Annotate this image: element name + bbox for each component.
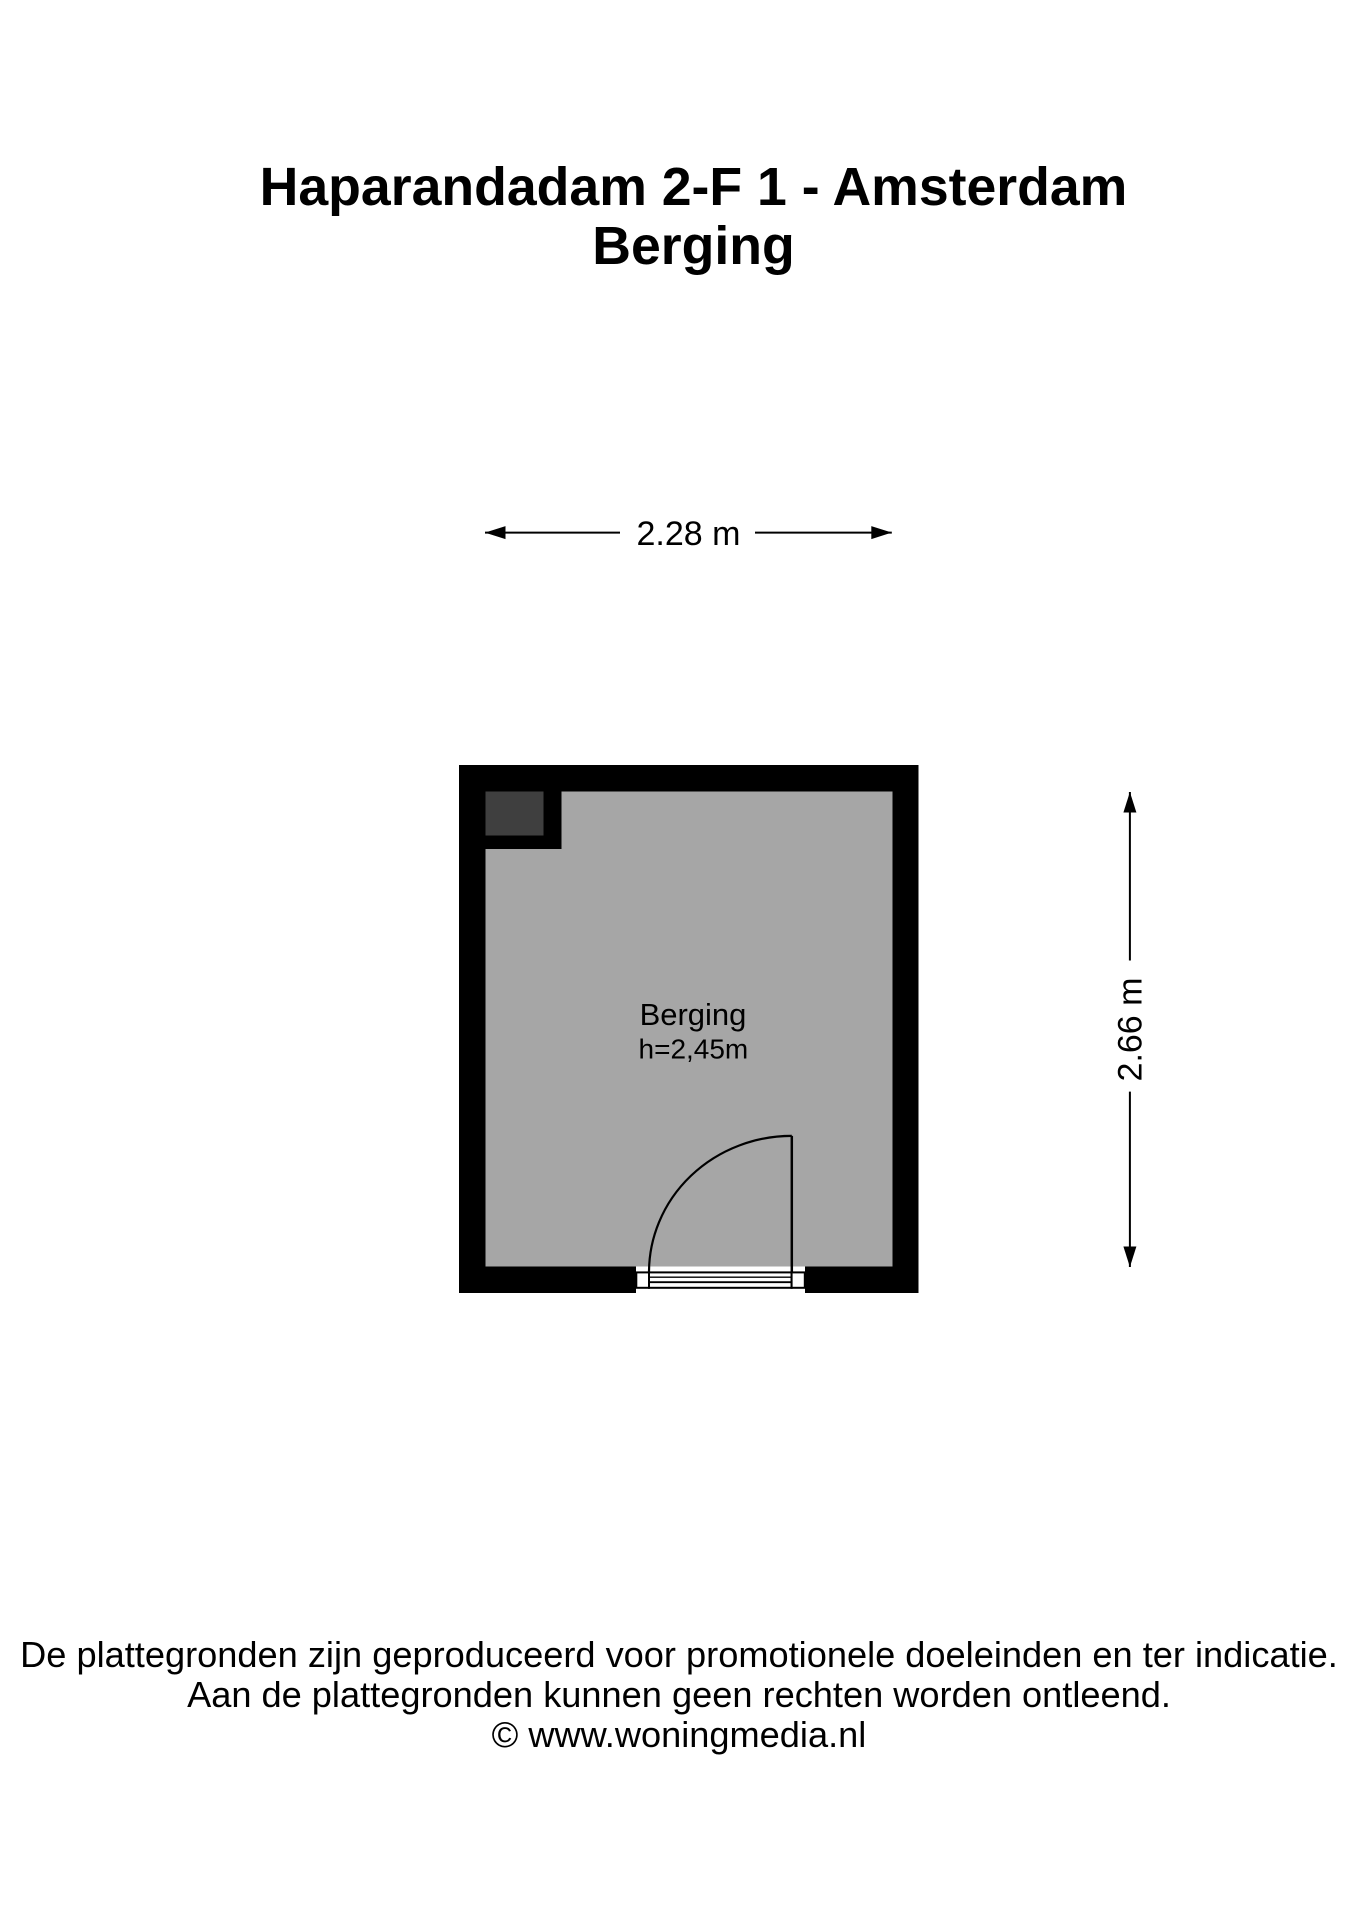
svg-text:Aan de plattegronden kunnen ge: Aan de plattegronden kunnen geen rechten…	[187, 1674, 1171, 1715]
svg-text:Berging: Berging	[592, 216, 794, 276]
svg-text:© www.woningmedia.nl: © www.woningmedia.nl	[492, 1714, 867, 1755]
svg-text:2.28 m: 2.28 m	[637, 515, 741, 553]
svg-text:Haparandadam 2-F 1 - Amsterdam: Haparandadam 2-F 1 - Amsterdam	[260, 157, 1128, 217]
svg-text:De plattegronden zijn geproduc: De plattegronden zijn geproduceerd voor …	[20, 1634, 1338, 1675]
svg-text:h=2,45m: h=2,45m	[639, 1033, 749, 1064]
svg-text:Berging: Berging	[640, 997, 747, 1032]
svg-text:2.66 m: 2.66 m	[1112, 978, 1150, 1082]
